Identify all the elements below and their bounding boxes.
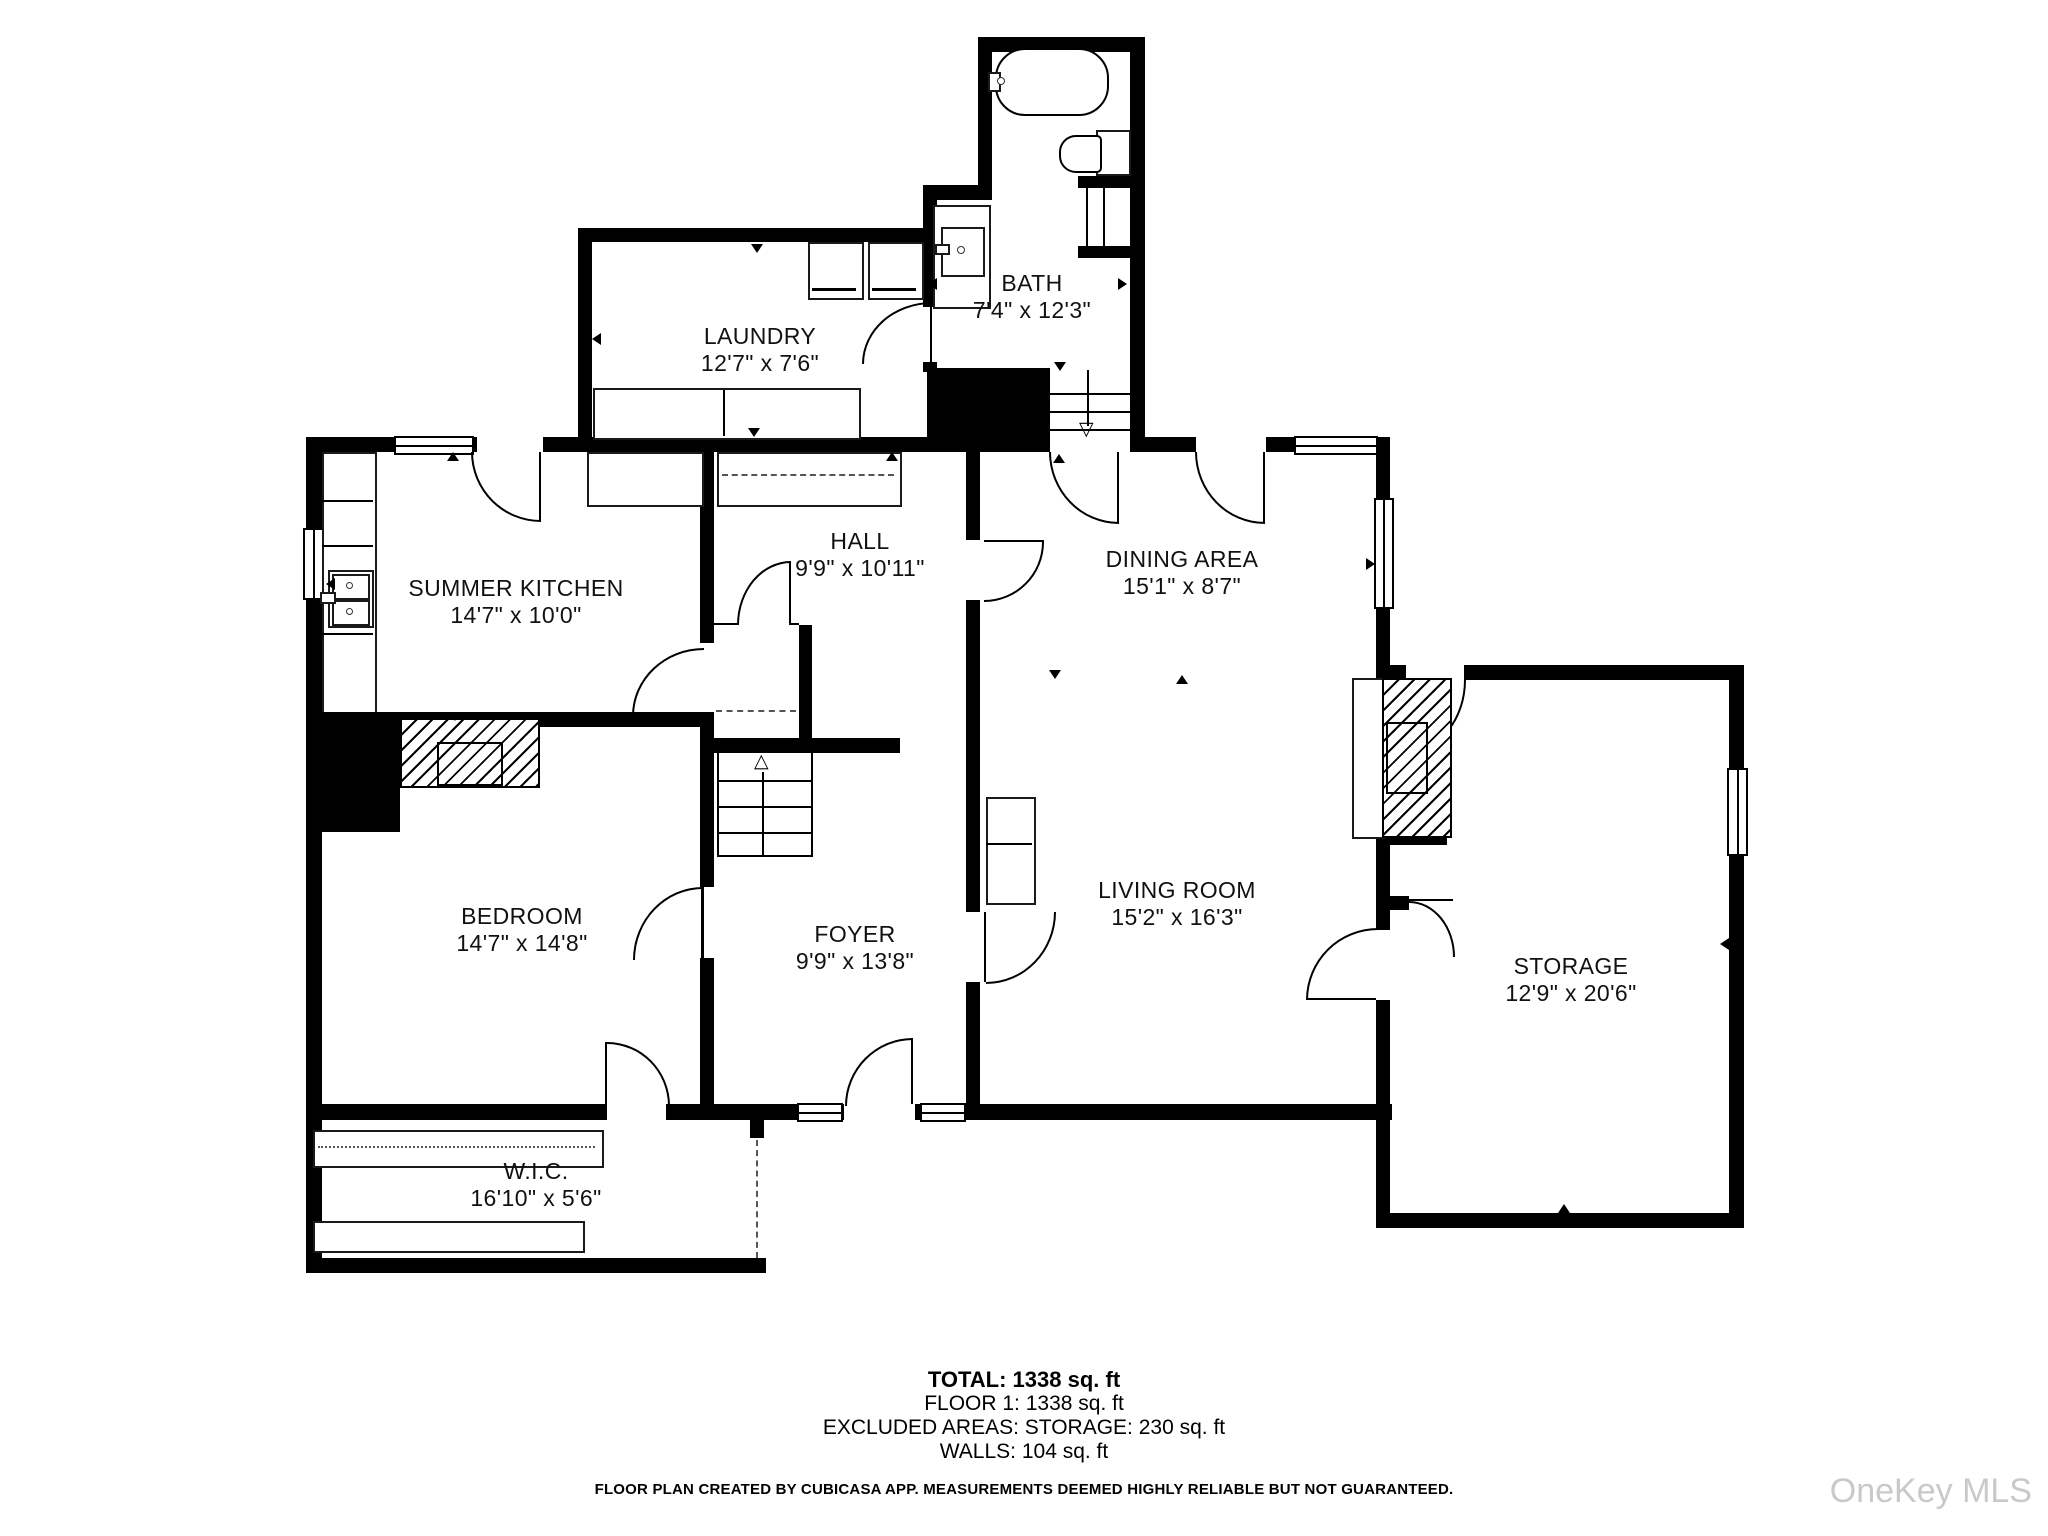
disclaimer-text: FLOOR PLAN CREATED BY CUBICASA APP. MEAS… (0, 1481, 2048, 1498)
wall-segment (1376, 845, 1390, 900)
direction-marker-icon (1118, 278, 1127, 290)
room-label-dining: DINING AREA 15'1" x 8'7" (1106, 546, 1259, 600)
counter-divider (322, 633, 373, 635)
niche-shelf-line (1103, 188, 1105, 246)
stair-tread (717, 832, 813, 834)
stair-tread (717, 806, 813, 808)
stair-center-line (1087, 370, 1089, 426)
counter-divider (723, 390, 725, 436)
room-dims: 15'1" x 8'7" (1106, 573, 1259, 600)
room-name: DINING AREA (1106, 546, 1259, 573)
door-arc (607, 1042, 670, 1106)
direction-marker-icon (748, 428, 760, 437)
tub-faucet-dot (997, 77, 1005, 85)
stair-edge (811, 753, 813, 857)
faucet-spout (320, 592, 336, 604)
niche-wall (1078, 246, 1130, 258)
room-name: SUMMER KITCHEN (408, 575, 623, 602)
wall-segment (1266, 437, 1296, 452)
summary-excluded: EXCLUDED AREAS: STORAGE: 230 sq. ft (0, 1416, 2048, 1440)
door-arc (633, 887, 703, 960)
direction-marker-icon (454, 1106, 466, 1115)
direction-marker-icon (1053, 454, 1065, 463)
direction-marker-icon (592, 333, 601, 345)
window (1727, 768, 1748, 856)
wall-segment (700, 958, 714, 1104)
door-arc (845, 1038, 913, 1106)
window (1374, 498, 1394, 609)
stairs-up-icon: △ (754, 752, 769, 771)
room-name: STORAGE (1505, 953, 1636, 980)
door-arc (1306, 928, 1378, 1000)
wall-segment (578, 228, 937, 242)
floor-plan: ▽ △ (0, 0, 2048, 1536)
wic-shelf (313, 1221, 585, 1253)
niche-shelf-line (1086, 188, 1088, 246)
washer-detail (812, 288, 856, 291)
wall-segment (966, 437, 980, 540)
stair-tread (717, 855, 813, 857)
room-label-wic: W.I.C. 16'10" x 5'6" (470, 1158, 601, 1212)
front-door-sidelite-window (797, 1103, 843, 1122)
wall-segment (1376, 1213, 1744, 1228)
stairs-down-icon: ▽ (1079, 420, 1094, 439)
wall-segment (1729, 665, 1744, 1228)
summary-walls: WALLS: 104 sq. ft (0, 1440, 2048, 1464)
stair-center-line (762, 772, 764, 857)
wic-rod-dotted-line (318, 1146, 595, 1148)
stair-tread (1048, 393, 1130, 395)
door-arc (632, 648, 704, 716)
bathtub-icon (995, 48, 1109, 116)
fireplace-hearth (1352, 678, 1386, 839)
front-door-sidelite-window (920, 1103, 966, 1122)
direction-marker-icon (928, 278, 937, 290)
closet-shelf (717, 452, 902, 507)
room-dims: 14'7" x 10'0" (408, 602, 623, 629)
door-arc (862, 302, 932, 364)
shelf-divider (986, 843, 1032, 845)
wall-segment (966, 600, 980, 912)
door-arc (1409, 901, 1455, 957)
room-dims: 9'9" x 13'8" (796, 948, 914, 975)
closet-rod-dashed-line (716, 710, 796, 712)
watermark: OneKey MLS (1830, 1472, 2032, 1511)
faucet-icon (346, 608, 353, 615)
window (1294, 436, 1378, 455)
direction-marker-icon (1174, 1106, 1186, 1115)
counter-divider (322, 545, 373, 547)
direction-marker-icon (1634, 666, 1646, 675)
wall-segment (799, 625, 812, 740)
door-arc (1195, 452, 1265, 524)
closet-rod-dashed-line (722, 474, 894, 476)
room-name: LIVING ROOM (1098, 877, 1256, 904)
toilet-bowl-icon (1059, 135, 1102, 173)
room-label-storage: STORAGE 12'9" x 20'6" (1505, 953, 1636, 1007)
direction-marker-icon (1049, 670, 1061, 679)
door-arc (471, 452, 541, 522)
stair-tread (717, 780, 813, 782)
room-label-hall: HALL 9'9" x 10'11" (795, 528, 925, 582)
wall-segment (750, 1104, 764, 1138)
faucet-icon (346, 582, 353, 589)
area-summary: TOTAL: 1338 sq. ft FLOOR 1: 1338 sq. ft … (0, 1368, 2048, 1464)
room-name: W.I.C. (470, 1158, 601, 1185)
stair-tread (1048, 411, 1130, 413)
direction-marker-icon (1720, 938, 1729, 950)
room-label-living: LIVING ROOM 15'2" x 16'3" (1098, 877, 1256, 931)
dryer-icon (868, 242, 924, 300)
living-builtin-shelf (986, 797, 1036, 905)
wall-segment (1130, 37, 1145, 452)
direction-marker-icon (751, 244, 763, 253)
counter-divider (322, 500, 373, 502)
closet-wall (1383, 896, 1409, 910)
faucet-icon (957, 246, 965, 254)
room-name: HALL (795, 528, 925, 555)
room-dims: 12'7" x 7'6" (701, 350, 819, 377)
fireplace-firebox (1386, 722, 1428, 794)
room-name: FOYER (796, 921, 914, 948)
chimney-mass (306, 712, 400, 832)
closet-edge (714, 623, 737, 625)
wic-divider-dashed-line (756, 1140, 758, 1258)
room-dims: 9'9" x 10'11" (795, 555, 925, 582)
wall-segment (1376, 437, 1390, 500)
door-arc (737, 561, 791, 625)
wall-segment (578, 228, 592, 452)
direction-marker-icon (1558, 1204, 1570, 1213)
kitchen-cabinet (587, 452, 704, 507)
wall-segment (978, 37, 992, 197)
direction-marker-icon (449, 712, 461, 721)
room-dims: 15'2" x 16'3" (1098, 904, 1256, 931)
laundry-counter (593, 388, 861, 440)
room-name: BATH (973, 270, 1091, 297)
faucet-spout (935, 244, 950, 255)
direction-marker-icon (326, 578, 335, 590)
wall-segment (700, 753, 714, 887)
direction-marker-icon (447, 452, 459, 461)
room-dims: 16'10" x 5'6" (470, 1185, 601, 1212)
direction-marker-icon (1176, 675, 1188, 684)
summary-floor: FLOOR 1: 1338 sq. ft (0, 1392, 2048, 1416)
door-arc (986, 912, 1056, 984)
wall-segment (966, 982, 980, 1120)
room-dims: 14'7" x 14'8" (456, 930, 587, 957)
dryer-detail (872, 288, 916, 291)
wall-segment (1464, 665, 1744, 680)
direction-marker-icon (1054, 362, 1066, 371)
room-dims: 7'4" x 12'3" (973, 297, 1091, 324)
room-label-foyer: FOYER 9'9" x 13'8" (796, 921, 914, 975)
direction-marker-icon (544, 716, 556, 725)
room-label-laundry: LAUNDRY 12'7" x 7'6" (701, 323, 819, 377)
niche-wall (1078, 176, 1130, 188)
direction-marker-icon (308, 902, 317, 914)
wall-segment (666, 1104, 752, 1120)
wall-segment (1376, 1000, 1390, 1215)
room-label-bath: BATH 7'4" x 12'3" (973, 270, 1091, 324)
direction-marker-icon (700, 576, 709, 588)
direction-marker-icon (886, 452, 898, 461)
direction-marker-icon (1366, 558, 1375, 570)
room-name: BEDROOM (456, 903, 587, 930)
room-label-summer-kitchen: SUMMER KITCHEN 14'7" x 10'0" (408, 575, 623, 629)
window (394, 436, 474, 455)
washer-icon (808, 242, 864, 300)
room-name: LAUNDRY (701, 323, 819, 350)
bedroom-firebox (437, 742, 503, 786)
door-arc (984, 542, 1044, 602)
wall-segment (700, 738, 900, 753)
summary-total: TOTAL: 1338 sq. ft (0, 1368, 2048, 1392)
room-dims: 12'9" x 20'6" (1505, 980, 1636, 1007)
stair-edge (717, 753, 719, 857)
room-label-bedroom: BEDROOM 14'7" x 14'8" (456, 903, 587, 957)
chimney-mass (927, 368, 1050, 452)
wall-segment (306, 1258, 766, 1273)
